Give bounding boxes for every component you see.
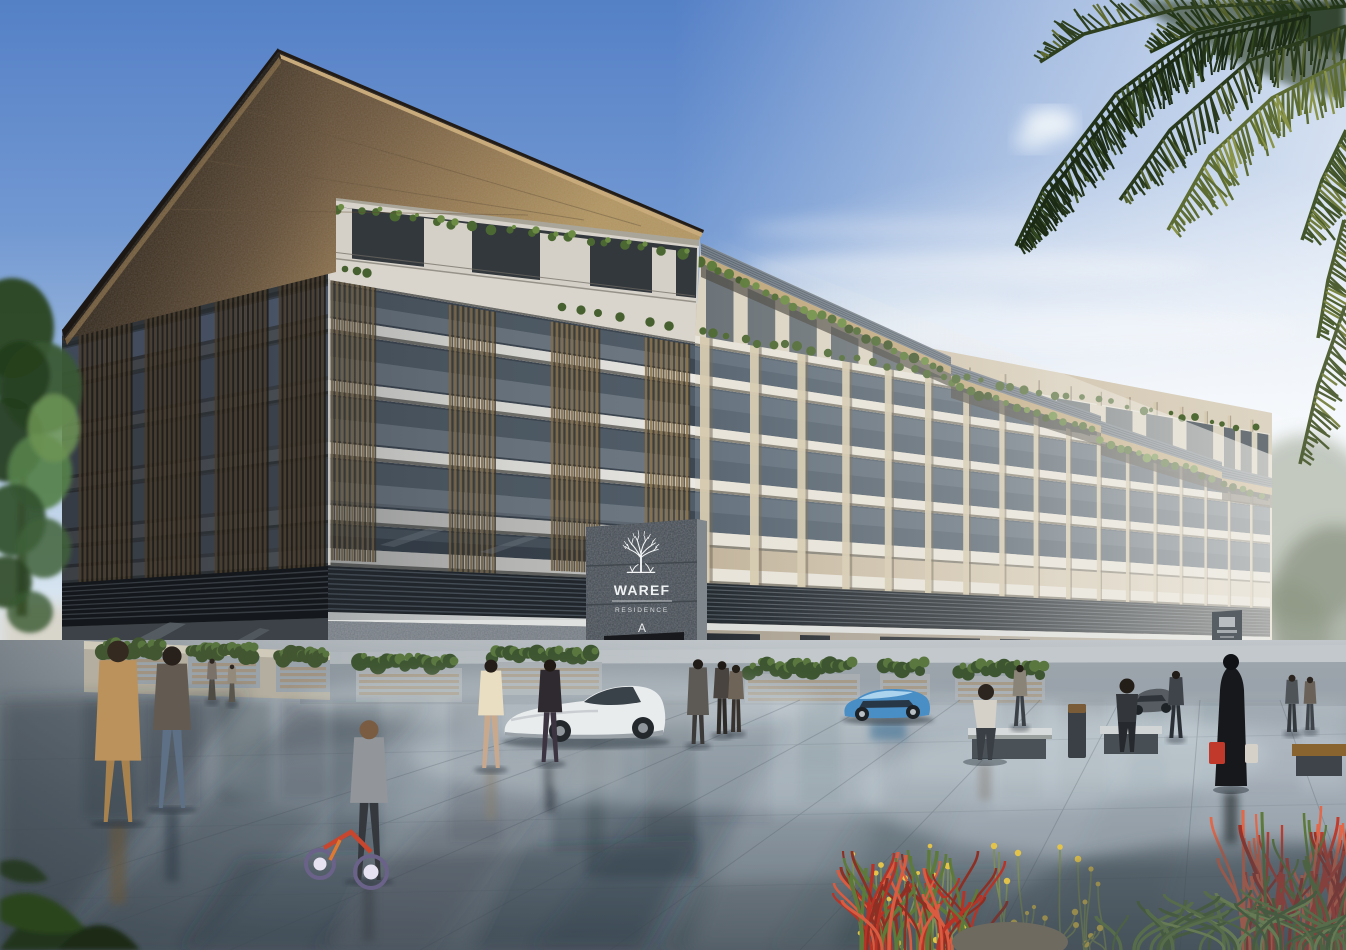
svg-text:RESIDENCE: RESIDENCE (615, 607, 669, 614)
svg-text:WAREF: WAREF (614, 582, 671, 598)
svg-text:A: A (638, 621, 646, 635)
